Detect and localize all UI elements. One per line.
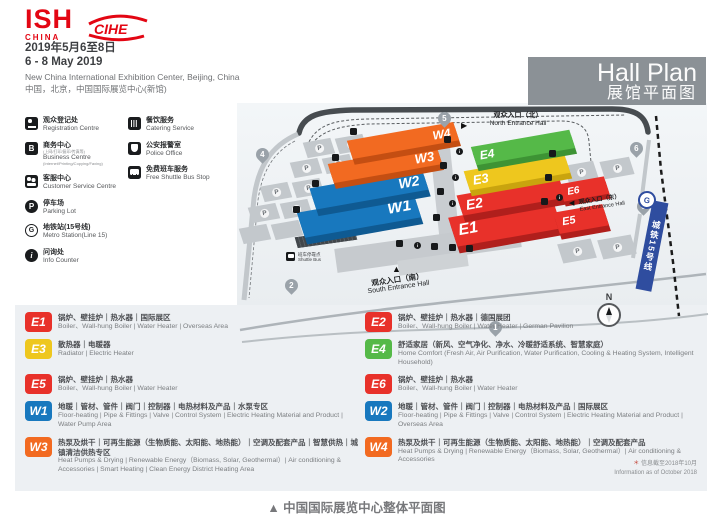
facility-label-en: Catering Service	[146, 125, 194, 132]
cihe-logo-text: CIHE	[94, 21, 128, 37]
facility-icon	[332, 154, 339, 161]
event-info: 2019年5月6至8日 6 - 8 May 2019 New China Int…	[25, 41, 240, 95]
page-title-cn: 展馆平面图	[528, 86, 697, 103]
facility-icon	[293, 206, 300, 213]
facility-label-en: Customer Service Centre	[43, 183, 116, 190]
facilities-column-2: 餐饮服务 Catering Service 公安报警室 Police Offic…	[128, 117, 236, 182]
figure-caption: ▲ 中国国际展览中心整体平面图	[0, 497, 713, 516]
facility-icon	[444, 136, 451, 143]
east-entrance-arrow-icon: ◀	[569, 199, 574, 207]
facility-parking: P 停车场 Parking Lot	[25, 200, 127, 216]
facility-label-cn: 停车场	[43, 200, 76, 208]
legend-row-E6: E6 锅炉、壁挂炉｜热水器Boiler、Wall-hung Boiler | W…	[365, 374, 701, 394]
parking-icon: P	[25, 200, 38, 213]
facility-label-en: Info Counter	[43, 257, 79, 264]
date-en: 6 - 8 May 2019	[25, 55, 240, 69]
ish-logo-text: ISH	[25, 6, 73, 33]
shuttle-bus-icon	[128, 166, 141, 179]
legend-badge-E3: E3	[25, 339, 52, 359]
north-entrance-arrow-icon: ▶	[461, 121, 467, 130]
facility-icon	[549, 150, 556, 157]
facility-label-cn: 问询处	[43, 249, 79, 257]
facility-metro: G 地铁站(15号线) Metro Station(Line 15)	[25, 224, 127, 240]
legend-row-E4: E4 舒适家居（新风、空气净化、净水、冷暖舒适系统、智慧家庭）Home Comf…	[365, 339, 701, 367]
registration-desk-icon	[25, 117, 38, 130]
facility-label-en: Police Office	[146, 150, 182, 157]
ish-logo: ISH CHINA	[25, 6, 73, 42]
legend-badge-E5: E5	[25, 374, 52, 394]
legend-row-E5: E5 锅炉、壁挂炉｜热水器Boiler、Wall-hung Boiler | W…	[25, 374, 361, 394]
legend-badge-E6: E6	[365, 374, 392, 394]
facility-icon	[466, 245, 473, 252]
page-title: Hall Plan 展馆平面图	[528, 57, 706, 105]
legend-badge-W2: W2	[365, 401, 392, 421]
facility-info-counter: i 问询处 Info Counter	[25, 249, 127, 265]
facility-police: 公安报警室 Police Office	[128, 142, 236, 158]
legend-badge-E4: E4	[365, 339, 392, 359]
customer-service-icon	[25, 175, 38, 188]
facility-icon	[449, 244, 456, 251]
info-point-icon: i	[414, 242, 421, 249]
legend-badge-W1: W1	[25, 401, 52, 421]
note-en: Information as of October 2018	[614, 469, 697, 478]
facility-label-cn: 餐饮服务	[146, 117, 194, 125]
facility-icon	[541, 198, 548, 205]
facility-label-en: Metro Station(Line 15)	[43, 232, 107, 239]
facility-label-cn: 客服中心	[43, 175, 116, 183]
legend-row-W3: W3 热泵及烘干｜可再生能源（生物质能、太阳能、地热能）｜空调及配套产品｜智慧供…	[25, 437, 361, 475]
facility-label-en: Registration Centre	[43, 125, 99, 132]
facility-icon	[440, 162, 447, 169]
north-entrance-label: 观众入口（北） North Entrance Hall	[472, 112, 564, 128]
facility-registration: 观众登记处 Registration Centre	[25, 117, 127, 133]
facility-label-en: Free Shuttle Bus Stop	[146, 174, 210, 181]
metro-icon: G	[25, 224, 38, 237]
shuttle-stop-en: Shuttle Bus	[298, 257, 321, 262]
south-entrance-arrow-icon: ▲	[392, 264, 401, 274]
legend-badge-E1: E1	[25, 312, 52, 332]
legend-badge-W3: W3	[25, 437, 52, 457]
info-point-icon: i	[556, 194, 563, 201]
shuttle-stop-marker: 班车停靠点 Shuttle Bus	[286, 252, 321, 263]
info-point-icon: i	[449, 200, 456, 207]
facility-icon	[433, 214, 440, 221]
date-cn: 2019年5月6至8日	[25, 41, 240, 55]
shuttle-stop-icon	[286, 252, 295, 261]
facility-icon	[396, 240, 403, 247]
police-icon	[128, 142, 141, 155]
facility-icon	[350, 128, 357, 135]
venue-cn: 中国，北京，中国国际展览中心(新馆)	[25, 84, 240, 95]
legend-row-W1: W1 地暖｜管材、管件｜阀门｜控制器｜电热材料及产品｜水泵专区Floor-hea…	[25, 401, 361, 429]
facility-icon	[431, 243, 438, 250]
facility-catering: 餐饮服务 Catering Service	[128, 117, 236, 133]
business-centre-icon: B	[25, 142, 38, 155]
info-icon: i	[25, 249, 38, 262]
facility-label-cn: 免费班车服务	[146, 166, 210, 174]
catering-icon	[128, 117, 141, 130]
info-point-icon: i	[452, 174, 459, 181]
cihe-logo-swoosh: CIHE	[86, 12, 150, 42]
facility-label-cn: 公安报警室	[146, 142, 182, 150]
page-title-en: Hall Plan	[528, 60, 697, 86]
compass-north-label: N	[594, 292, 624, 302]
venue-en: New China International Exhibition Cente…	[25, 72, 240, 83]
legend-badge-E2: E2	[365, 312, 392, 332]
facility-icon	[312, 180, 319, 187]
legend-badge-W4: W4	[365, 437, 392, 457]
facility-business-centre: B 商务中心 (上网/打印/复印/传真等) Business Centre (I…	[25, 142, 127, 167]
legend-row-W2: W2 地暖｜管材、管件｜阀门｜控制器｜电热材料及产品｜国际展区Floor-hea…	[365, 401, 701, 429]
note-cn: 信息截至2018年10月	[641, 461, 697, 467]
facilities-column-1: 观众登记处 Registration Centre B 商务中心 (上网/打印/…	[25, 117, 127, 264]
facility-customer-service: 客服中心 Customer Service Centre	[25, 175, 127, 191]
facility-label-cn: 观众登记处	[43, 117, 99, 125]
facility-sub-en: (Internet/Printing/Copying/Faxing)	[43, 162, 103, 167]
facility-label-en: Parking Lot	[43, 208, 76, 215]
info-point-icon: i	[456, 148, 463, 155]
hall-legend: E1 锅炉、壁挂炉｜热水器｜国际展区Boiler、Wall-hung Boile…	[25, 312, 701, 475]
legend-row-E3: E3 散热器｜电暖器Radiator | Electric Heater	[25, 339, 361, 367]
facility-shuttle: 免费班车服务 Free Shuttle Bus Stop	[128, 166, 236, 182]
info-note: ＊ 信息截至2018年10月 Information as of October…	[614, 460, 697, 478]
facility-label-cn: 地铁站(15号线)	[43, 224, 107, 232]
facility-icon	[437, 188, 444, 195]
legend-row-E2: E2 锅炉、壁挂炉｜热水器｜德国展团Boiler、Wall-hung Boile…	[365, 312, 701, 332]
facility-icon	[545, 174, 552, 181]
legend-row-E1: E1 锅炉、壁挂炉｜热水器｜国际展区Boiler、Wall-hung Boile…	[25, 312, 361, 332]
